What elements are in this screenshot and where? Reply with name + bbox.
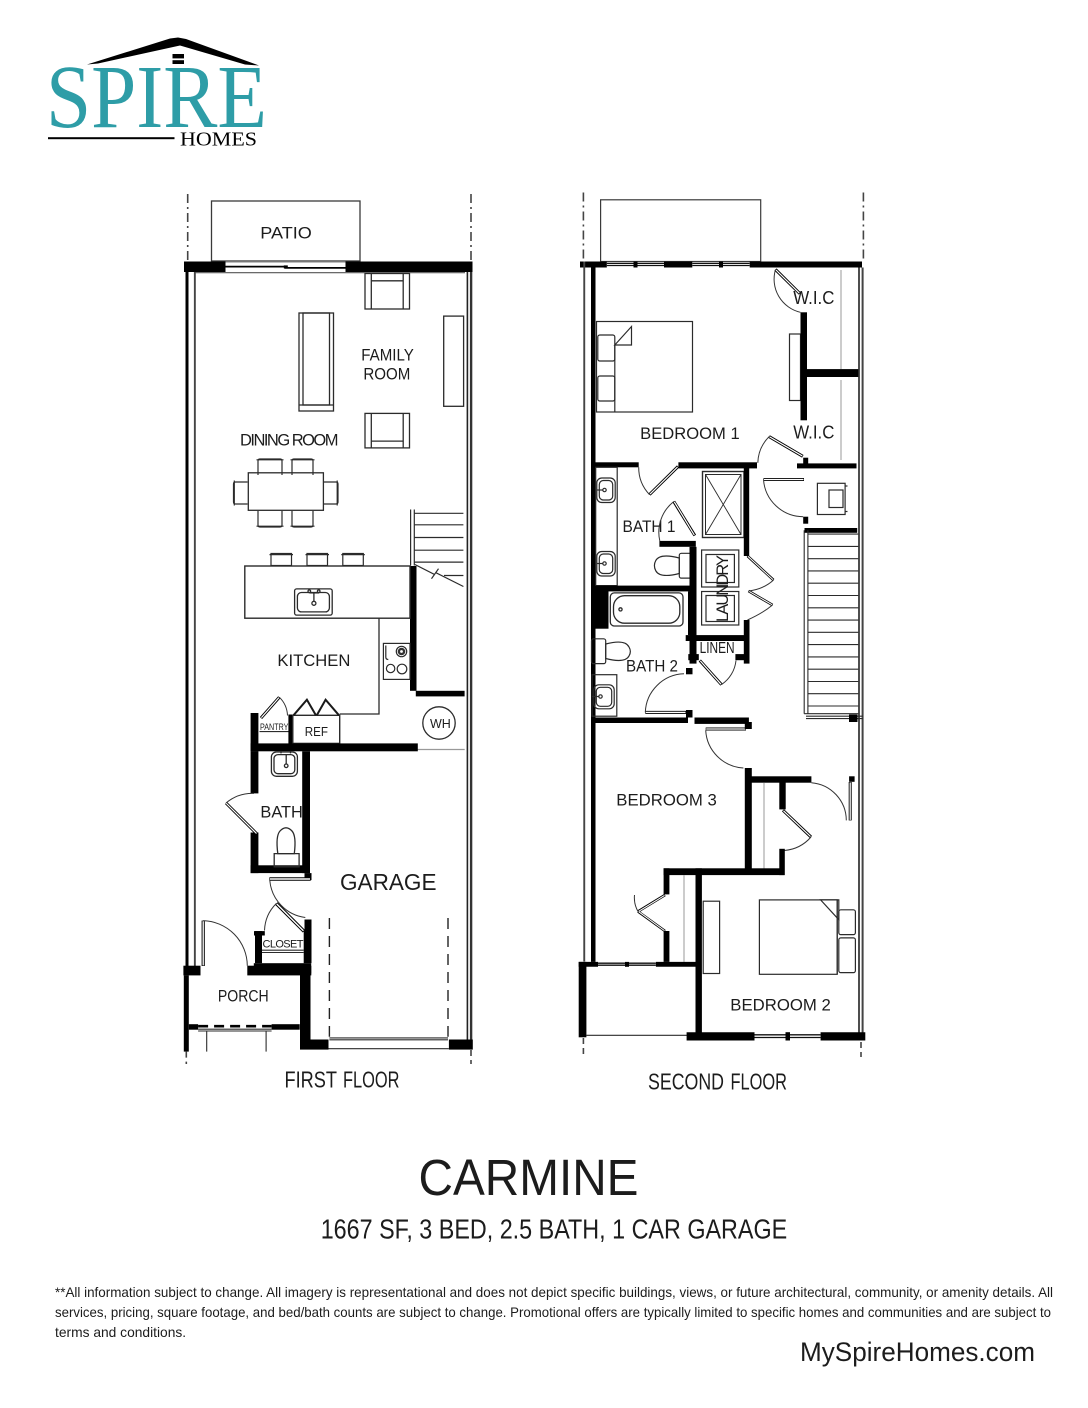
- svg-text:services, pricing, square foot: services, pricing, square footage, and b…: [55, 1305, 1051, 1320]
- svg-text:terms and conditions.: terms and conditions.: [55, 1325, 186, 1340]
- svg-text:WH: WH: [430, 717, 451, 731]
- svg-text:KITCHEN: KITCHEN: [277, 652, 350, 670]
- svg-text:LINEN: LINEN: [700, 640, 735, 657]
- svg-text:BATH 2: BATH 2: [626, 658, 678, 676]
- svg-text:SECOND: SECOND: [648, 1069, 724, 1095]
- svg-text:CLOSET: CLOSET: [263, 939, 304, 951]
- svg-text:FLOOR: FLOOR: [343, 1067, 400, 1093]
- svg-text:PANTRY: PANTRY: [260, 722, 288, 732]
- svg-text:**All information subject to c: **All information subject to change. All…: [55, 1285, 1053, 1300]
- svg-text:PORCH: PORCH: [218, 988, 269, 1006]
- svg-text:BEDROOM 2: BEDROOM 2: [730, 997, 831, 1015]
- svg-text:LAUNDRY: LAUNDRY: [714, 555, 732, 622]
- svg-text:ROOM: ROOM: [363, 366, 410, 384]
- svg-text:DINING ROOM: DINING ROOM: [240, 432, 339, 450]
- svg-text:FAMILY: FAMILY: [361, 347, 414, 365]
- svg-text:MySpireHomes.com: MySpireHomes.com: [800, 1337, 1035, 1367]
- svg-text:FIRST: FIRST: [285, 1067, 338, 1093]
- svg-text:HOMES: HOMES: [180, 129, 257, 151]
- svg-text:BATH: BATH: [260, 803, 303, 821]
- svg-text:BEDROOM 1: BEDROOM 1: [640, 425, 740, 443]
- svg-text:BEDROOM 3: BEDROOM 3: [616, 792, 717, 810]
- svg-text:W.I.C: W.I.C: [793, 288, 834, 308]
- svg-text:W.I.C: W.I.C: [793, 423, 834, 443]
- svg-text:FLOOR: FLOOR: [731, 1069, 788, 1095]
- svg-text:1667 SF, 3 BED, 2.5 BATH, 1 CA: 1667 SF, 3 BED, 2.5 BATH, 1 CAR GARAGE: [321, 1214, 788, 1245]
- svg-text:REF: REF: [305, 725, 328, 739]
- svg-text:BATH 1: BATH 1: [623, 518, 676, 536]
- svg-text:GARAGE: GARAGE: [340, 869, 437, 895]
- svg-text:CARMINE: CARMINE: [419, 1149, 639, 1206]
- svg-text:PATIO: PATIO: [260, 224, 312, 243]
